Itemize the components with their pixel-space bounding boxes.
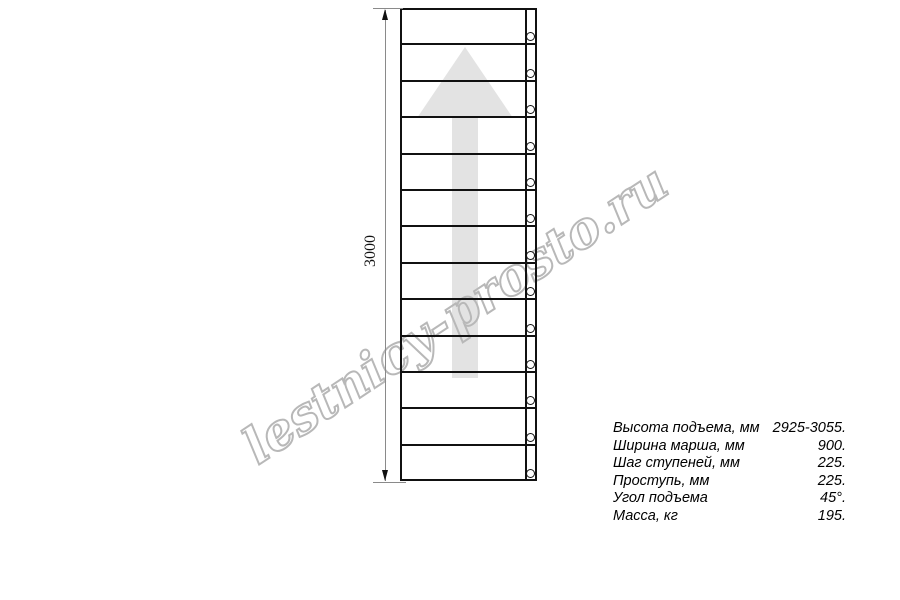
step-line xyxy=(400,225,537,227)
step-line xyxy=(400,116,537,118)
dimension-extension-top xyxy=(373,8,403,9)
step-line xyxy=(400,444,537,446)
step-line xyxy=(400,371,537,373)
spec-value: 195. xyxy=(818,508,846,526)
bolt-hole xyxy=(526,360,535,369)
step-line xyxy=(400,262,537,264)
spec-value: 900. xyxy=(818,438,846,456)
spec-label: Масса, кг xyxy=(613,508,678,526)
step-line xyxy=(400,407,537,409)
spec-label: Угол подъема xyxy=(613,490,708,508)
dimension-arrow-down-icon xyxy=(382,470,388,481)
bolt-hole xyxy=(526,69,535,78)
bolt-hole xyxy=(526,469,535,478)
bolt-hole xyxy=(526,251,535,260)
spec-value: 225. xyxy=(818,473,846,491)
drawing-canvas: lestnicy-prosto.ru 3000 Высота подъема, … xyxy=(0,0,900,600)
specs-table: Высота подъема, мм2925-3055.Ширина марша… xyxy=(613,420,846,525)
spec-label: Высота подъема, мм xyxy=(613,420,760,438)
step-line xyxy=(400,80,537,82)
dimension-arrow-up-icon xyxy=(382,9,388,20)
spec-row: Высота подъема, мм2925-3055. xyxy=(613,420,846,438)
spec-label: Проступь, мм xyxy=(613,473,709,491)
step-line xyxy=(400,189,537,191)
step-line xyxy=(400,153,537,155)
spec-value: 225. xyxy=(818,455,846,473)
spec-row: Угол подъема45°. xyxy=(613,490,846,508)
step-line xyxy=(400,335,537,337)
bolt-hole xyxy=(526,142,535,151)
dimension-extension-bottom xyxy=(373,482,406,483)
spec-label: Шаг ступеней, мм xyxy=(613,455,740,473)
spec-value: 45°. xyxy=(820,490,846,508)
dimension-line xyxy=(385,10,386,481)
spec-row: Ширина марша, мм900. xyxy=(613,438,846,456)
dimension-label: 3000 xyxy=(362,221,380,281)
spec-value: 2925-3055. xyxy=(773,420,846,438)
spec-label: Ширина марша, мм xyxy=(613,438,745,456)
step-line xyxy=(400,298,537,300)
step-line xyxy=(400,43,537,45)
spec-row: Шаг ступеней, мм225. xyxy=(613,455,846,473)
spec-row: Проступь, мм225. xyxy=(613,473,846,491)
bolt-hole xyxy=(526,324,535,333)
spec-row: Масса, кг195. xyxy=(613,508,846,526)
bolt-hole xyxy=(526,178,535,187)
bolt-hole xyxy=(526,433,535,442)
